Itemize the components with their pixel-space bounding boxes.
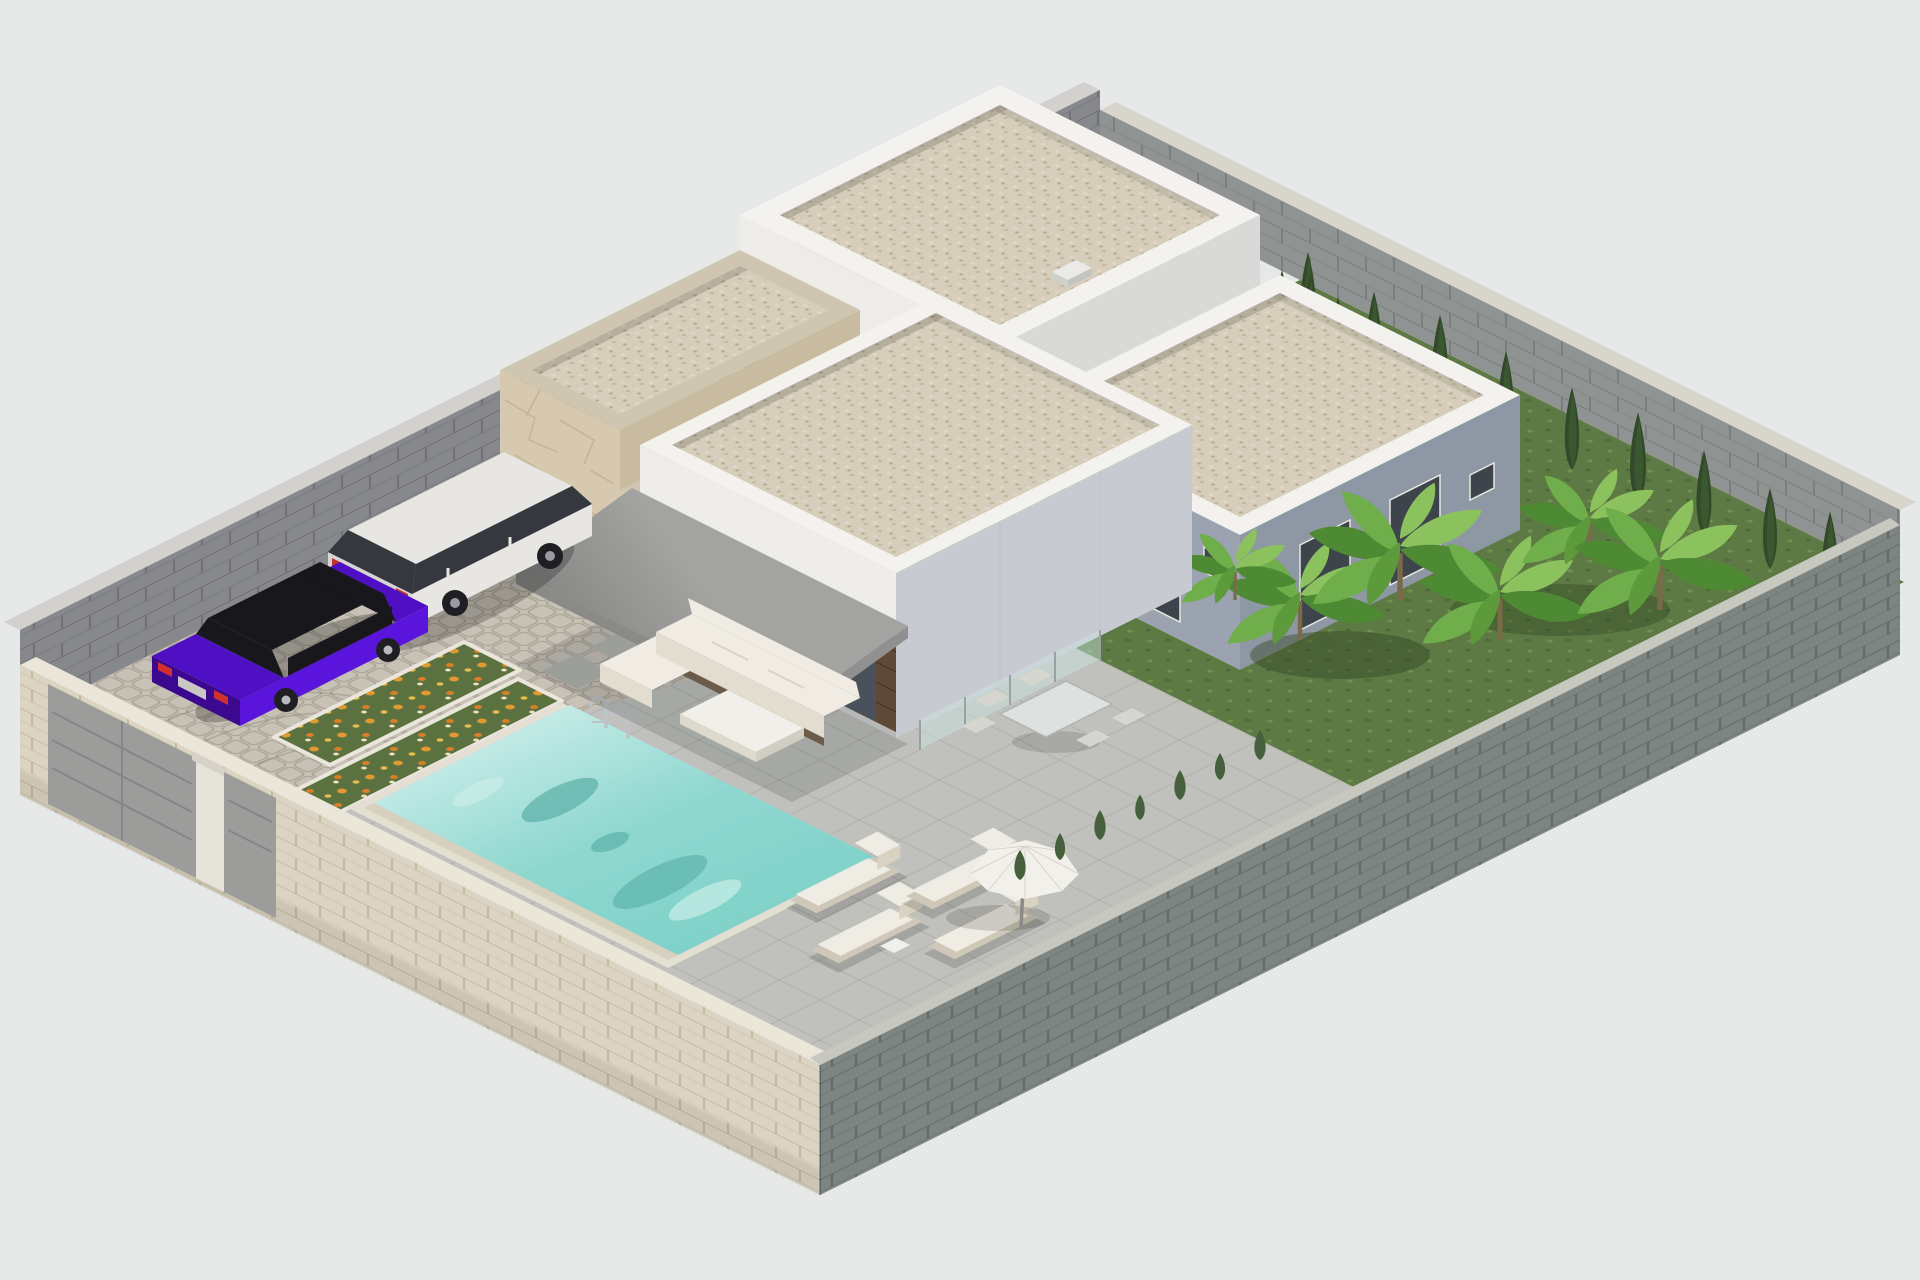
gate-pillar [196, 758, 224, 892]
render-canvas [0, 0, 1920, 1280]
villa-render [0, 0, 1920, 1280]
